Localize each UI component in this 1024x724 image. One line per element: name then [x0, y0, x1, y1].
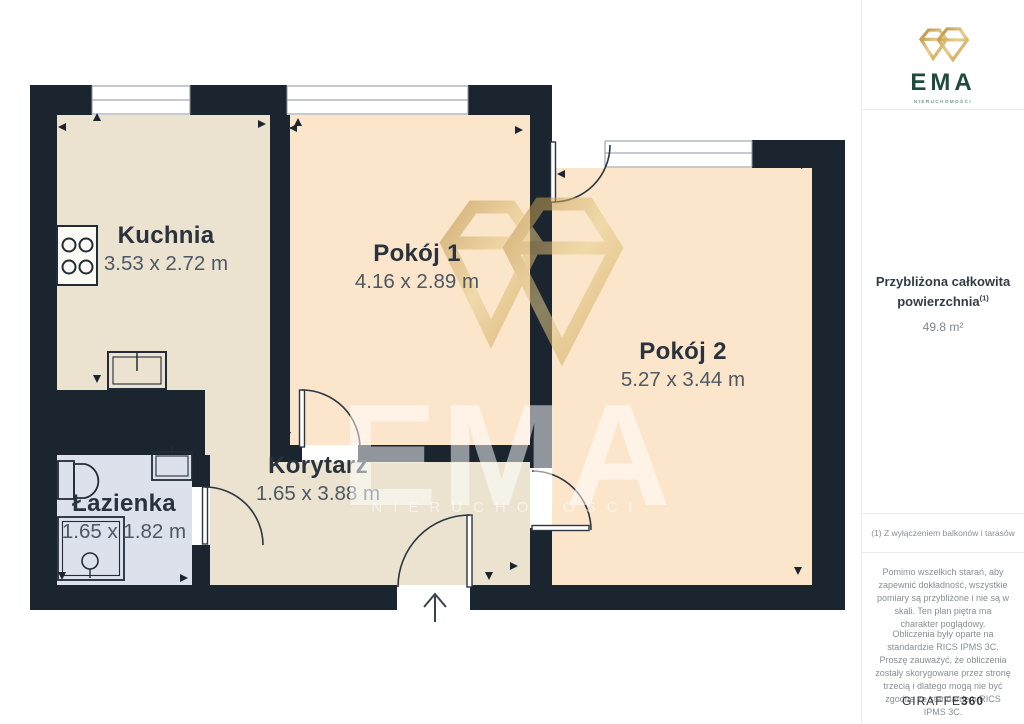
vendor-name: GIRAFFE — [902, 694, 961, 708]
sidebar: EMA NIERUCHOMOŚCI Przybliżona całkowita … — [861, 0, 1024, 724]
room-label-korytarz: Korytarz 1.65 x 3.88 m — [256, 452, 380, 508]
stove-icon — [57, 226, 97, 285]
total-area-title: Przybliżona całkowita powierzchnia(1) — [874, 272, 1012, 311]
total-area-footnote-marker: (1) — [980, 293, 989, 302]
brand-tagline: NIERUCHOMOŚCI — [862, 99, 1024, 104]
room-label-kuchnia: Kuchnia 3.53 x 2.72 m — [104, 222, 228, 278]
area-footnote: (1) Z wyłączeniem balkonów i tarasów — [862, 513, 1024, 553]
vendor-suffix: 360 — [961, 694, 984, 708]
room-dimensions: 5.27 x 3.44 m — [621, 366, 745, 395]
room-name: Pokój 2 — [621, 338, 745, 366]
room-label-lazienka: Łazienka 1.65 x 1.82 m — [62, 490, 186, 546]
brand-name: EMA — [862, 69, 1024, 97]
room-label-pokoj1: Pokój 1 4.16 x 2.89 m — [355, 240, 479, 296]
room-name: Łazienka — [62, 490, 186, 518]
room-label-pokoj2: Pokój 2 5.27 x 3.44 m — [621, 338, 745, 394]
entrance-arrow-icon — [424, 594, 446, 622]
window-pokoj2 — [605, 141, 752, 167]
room-dimensions: 4.16 x 2.89 m — [355, 268, 479, 297]
room-dimensions: 3.53 x 2.72 m — [104, 250, 228, 279]
total-area-summary: Przybliżona całkowita powierzchnia(1) 49… — [862, 272, 1024, 334]
room-name: Kuchnia — [104, 222, 228, 250]
disclaimer-accuracy: Pomimo wszelkich starań, aby zapewnić do… — [862, 566, 1024, 631]
room-name: Korytarz — [256, 452, 380, 480]
vendor-logo: GIRAFFE360 — [862, 694, 1024, 708]
room-dimensions: 1.65 x 1.82 m — [62, 518, 186, 547]
brand-diamond-icon — [914, 25, 972, 63]
room-dimensions: 1.65 x 3.88 m — [256, 480, 380, 509]
brand-logo: EMA NIERUCHOMOŚCI — [862, 0, 1024, 110]
room-name: Pokój 1 — [355, 240, 479, 268]
total-area-title-text: Przybliżona całkowita powierzchnia — [876, 274, 1010, 309]
total-area-value: 49.8 m² — [874, 320, 1012, 334]
